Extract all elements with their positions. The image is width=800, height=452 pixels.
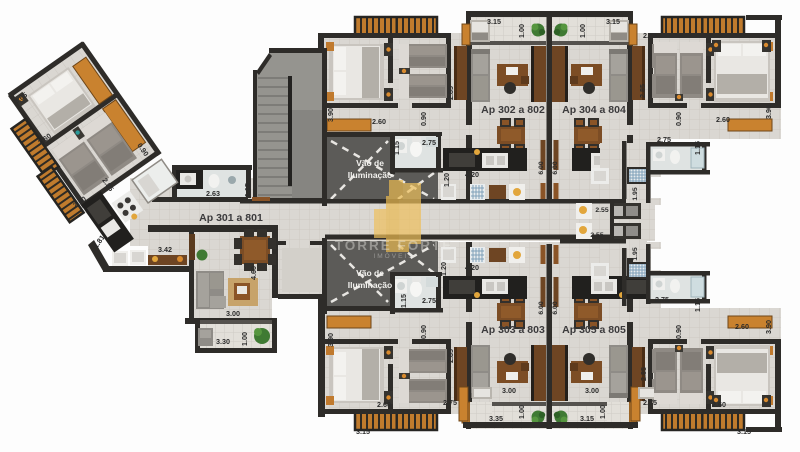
svg-text:4.20: 4.20: [465, 170, 479, 179]
svg-text:2.85: 2.85: [639, 367, 648, 381]
svg-text:2.55: 2.55: [595, 207, 608, 214]
svg-text:2.85: 2.85: [638, 84, 647, 98]
svg-text:1.00: 1.00: [240, 332, 249, 346]
svg-text:2.75: 2.75: [655, 295, 669, 304]
svg-text:Ap 303 a 803: Ap 303 a 803: [481, 324, 545, 336]
svg-text:3.30: 3.30: [216, 337, 230, 346]
svg-text:3.00: 3.00: [502, 386, 516, 395]
svg-text:1.15: 1.15: [693, 141, 702, 155]
svg-text:2.75: 2.75: [657, 135, 671, 144]
svg-text:Ap 302 a 802: Ap 302 a 802: [481, 104, 545, 116]
svg-text:1.15: 1.15: [243, 183, 252, 197]
svg-text:2.75: 2.75: [437, 31, 451, 40]
svg-text:Ap 304 a 804: Ap 304 a 804: [562, 104, 626, 116]
svg-text:Iluminação: Iluminação: [348, 170, 392, 180]
svg-text:3.15: 3.15: [606, 17, 620, 26]
svg-text:2.63: 2.63: [206, 189, 220, 198]
svg-text:2.75: 2.75: [422, 138, 436, 147]
svg-text:3.00: 3.00: [585, 386, 599, 395]
svg-text:3.15: 3.15: [580, 414, 594, 423]
svg-text:4.60: 4.60: [249, 266, 258, 280]
svg-text:Ap 301 a 801: Ap 301 a 801: [199, 212, 263, 224]
svg-text:3.15: 3.15: [737, 427, 751, 436]
svg-text:3.90: 3.90: [326, 333, 335, 347]
svg-text:2.60: 2.60: [377, 400, 391, 409]
svg-text:Vão de: Vão de: [356, 158, 384, 168]
svg-text:0.90: 0.90: [674, 325, 683, 339]
svg-text:Ap 305 a 805: Ap 305 a 805: [562, 324, 626, 336]
svg-text:TORRE FORTE: TORRE FORTE: [335, 238, 454, 253]
svg-text:3.35: 3.35: [489, 414, 503, 423]
svg-text:6.00: 6.00: [552, 301, 559, 314]
svg-text:3.15: 3.15: [356, 427, 370, 436]
svg-text:2.60: 2.60: [735, 322, 749, 331]
svg-text:6.00: 6.00: [552, 161, 559, 174]
svg-text:1.15: 1.15: [399, 294, 408, 308]
svg-text:2.55: 2.55: [590, 232, 603, 239]
svg-text:3.90: 3.90: [764, 320, 773, 334]
svg-text:Iluminação: Iluminação: [348, 280, 392, 290]
svg-text:2.60: 2.60: [712, 400, 726, 409]
svg-text:3.90: 3.90: [326, 108, 335, 122]
svg-text:2.60: 2.60: [716, 115, 730, 124]
svg-text:2.75: 2.75: [643, 31, 657, 40]
svg-text:0.90: 0.90: [674, 112, 683, 126]
svg-text:1.00: 1.00: [598, 405, 607, 419]
svg-text:1.20: 1.20: [439, 262, 448, 276]
svg-text:2.75: 2.75: [422, 296, 436, 305]
svg-text:1.00: 1.00: [517, 405, 526, 419]
svg-text:3.42: 3.42: [158, 245, 172, 254]
svg-text:0.90: 0.90: [419, 325, 428, 339]
svg-text:2.85: 2.85: [446, 86, 455, 100]
svg-text:1.95: 1.95: [632, 187, 639, 200]
svg-text:Vão de: Vão de: [356, 268, 384, 278]
svg-text:1.20: 1.20: [442, 173, 451, 187]
svg-text:2.85: 2.85: [446, 349, 455, 363]
svg-text:1.00: 1.00: [517, 24, 526, 38]
svg-text:1.15: 1.15: [693, 298, 702, 312]
svg-text:1.15: 1.15: [392, 141, 401, 155]
svg-text:4.20: 4.20: [465, 263, 479, 272]
svg-text:1.95: 1.95: [632, 247, 639, 260]
svg-text:2.75: 2.75: [643, 398, 657, 407]
svg-text:3.00: 3.00: [226, 309, 240, 318]
svg-text:6.00: 6.00: [538, 161, 545, 174]
svg-text:6.00: 6.00: [538, 301, 545, 314]
svg-text:0.90: 0.90: [419, 112, 428, 126]
svg-text:2.60: 2.60: [372, 117, 386, 126]
svg-text:2.75: 2.75: [443, 398, 457, 407]
svg-text:3.15: 3.15: [487, 17, 501, 26]
svg-text:3.90: 3.90: [764, 105, 773, 119]
svg-text:IMÓVEIS: IMÓVEIS: [373, 251, 414, 260]
svg-text:1.00: 1.00: [578, 24, 587, 38]
